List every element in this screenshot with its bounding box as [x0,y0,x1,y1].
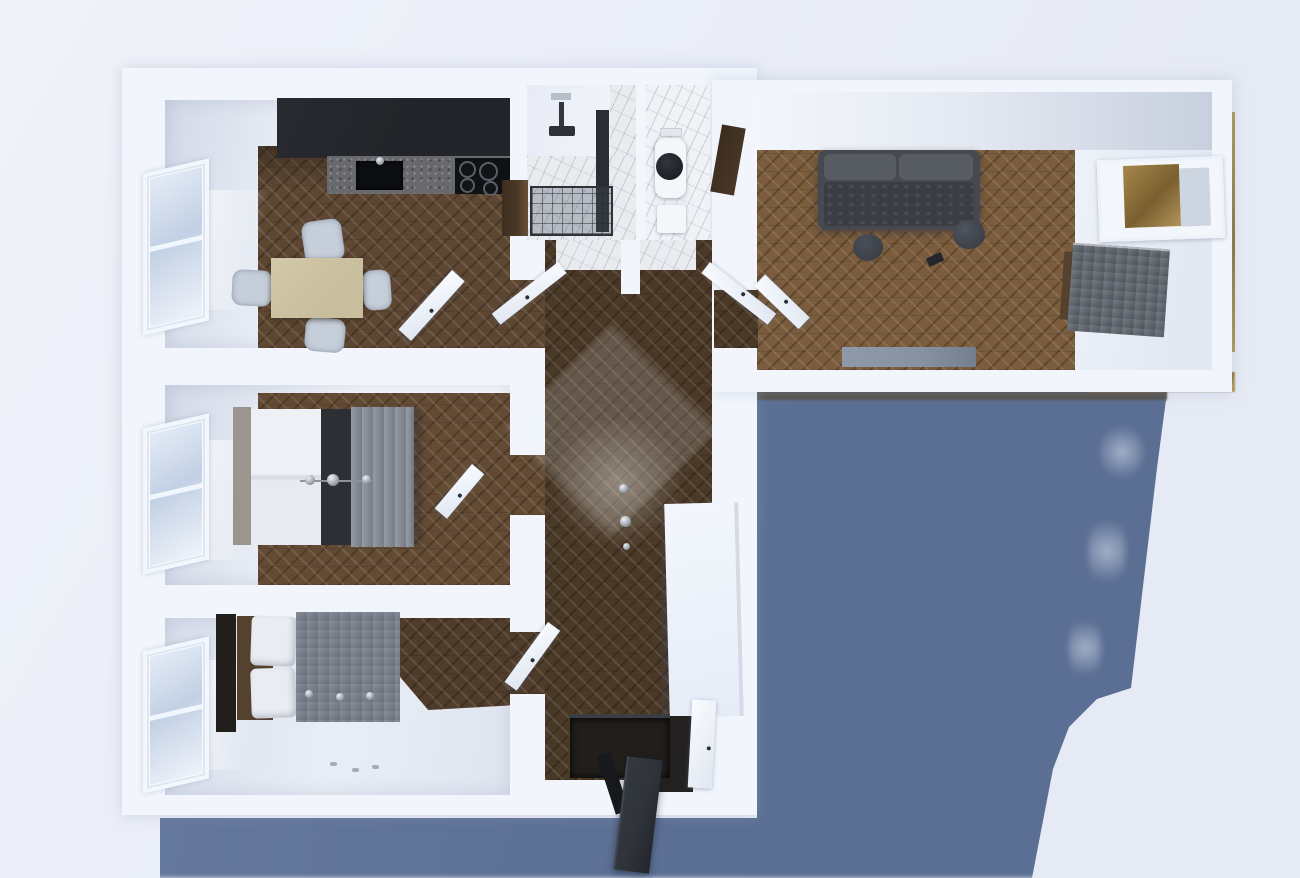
entry-side-leaf [688,699,717,788]
floorplan-render [0,0,1300,878]
shower-head [549,126,575,136]
sofa-cushion [899,154,973,180]
floor-mark [352,768,359,772]
wall-stub [621,240,640,294]
window-glass [150,645,202,785]
bathroom-vanity [502,180,528,236]
cooktop-burner [459,161,476,178]
chrome-knob [366,692,374,700]
faucet [376,157,384,165]
kitchen-window [143,158,209,335]
pillow [250,615,297,667]
dining-chair [362,269,393,311]
sideboard [842,347,976,367]
kitchen-sink [356,161,403,190]
headboard-dark [216,614,236,732]
shower-ceiling-mount [551,93,571,100]
window-glass [150,422,202,566]
flush-plate [660,128,682,137]
bed-duvet [296,612,400,722]
hall-wardrobe [664,502,744,718]
room-living [757,92,1212,158]
wc-sink [657,205,686,233]
pillow [250,667,297,719]
chrome-knob [305,475,315,485]
shadow-light-blob [1068,612,1102,684]
bed-shadow [413,409,422,545]
desk [1067,243,1170,338]
sofa-seat [824,182,974,226]
shadow-light-blob [1100,420,1144,484]
side-table [953,220,985,249]
brass-mirror [1123,164,1181,228]
chrome-knob [327,474,339,486]
shadow-light-blob [1088,510,1126,592]
pendant-lamp-bulb [623,543,630,550]
sofa-cushion [824,154,896,180]
cooktop-burner [460,178,475,193]
dining-chair [231,269,273,307]
threshold-glow [566,240,600,266]
chrome-knob [362,475,371,484]
side-table [853,234,883,261]
bed-blanket [351,407,414,547]
toilet-lid [656,153,683,180]
cooktop-burner [479,162,498,181]
mirror-glass [1179,167,1211,226]
shower-enclosure [530,186,613,236]
floor-mark [372,765,379,769]
chrome-knob [336,693,344,701]
threshold-glow [648,240,682,266]
bedroom-bottom-window [143,636,209,793]
window-glass [150,167,202,327]
dining-chair [304,316,347,353]
pendant-lamp-bulb [620,516,631,527]
chrome-knob [305,690,313,698]
bedroom-middle-window [143,413,209,574]
floor-mark [330,762,337,766]
headboard [233,407,251,545]
kitchen-counter [277,98,510,158]
dining-table [271,258,363,318]
pendant-lamp-bulb [619,484,628,493]
cooktop-burner [483,181,498,196]
